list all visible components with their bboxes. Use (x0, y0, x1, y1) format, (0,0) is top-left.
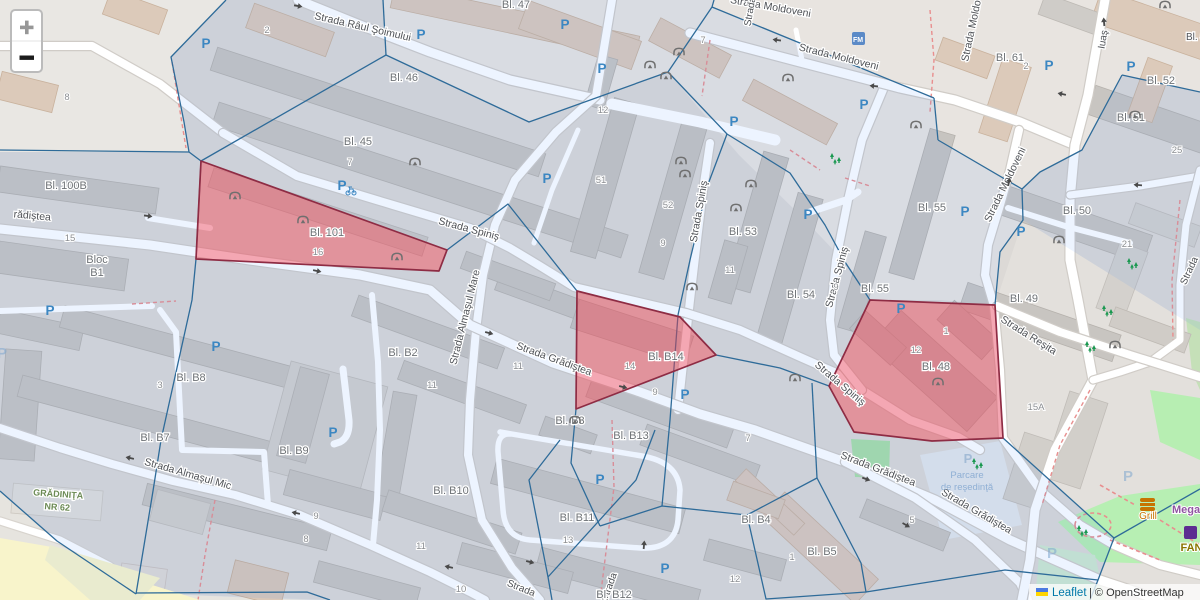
svg-text:B1: B1 (90, 267, 103, 279)
svg-text:P: P (0, 345, 7, 362)
svg-text:P: P (328, 425, 337, 440)
svg-text:Bl. 100B: Bl. 100B (45, 180, 87, 192)
svg-text:P: P (1047, 545, 1057, 562)
svg-text:Bl. B8: Bl. B8 (176, 372, 205, 384)
svg-text:Bl. 47: Bl. 47 (502, 0, 530, 11)
svg-text:P: P (597, 61, 606, 76)
svg-text:P: P (45, 303, 54, 318)
svg-text:Bl. 55: Bl. 55 (861, 283, 889, 295)
svg-text:7: 7 (347, 157, 352, 168)
svg-text:10: 10 (456, 584, 467, 595)
svg-text:Bl. B12: Bl. B12 (596, 589, 631, 600)
svg-text:1: 1 (789, 552, 794, 563)
svg-text:Parcare: Parcare (950, 470, 983, 481)
svg-text:P: P (542, 171, 551, 186)
svg-text:Bl. B9: Bl. B9 (279, 445, 308, 457)
svg-text:Bloc: Bloc (86, 254, 108, 266)
svg-text:P: P (680, 387, 689, 402)
svg-text:5: 5 (909, 515, 914, 526)
svg-text:14: 14 (625, 361, 636, 372)
svg-text:52: 52 (663, 200, 674, 211)
svg-text:3: 3 (157, 380, 162, 391)
svg-text:13: 13 (563, 535, 574, 546)
svg-text:Bl. 54: Bl. 54 (787, 289, 815, 301)
svg-text:Bl. 52: Bl. 52 (1147, 75, 1175, 87)
svg-text:8: 8 (303, 534, 308, 545)
svg-text:Bl. B11: Bl. B11 (560, 512, 595, 524)
svg-text:| © OpenStreetMap: | © OpenStreetMap (1089, 587, 1184, 599)
svg-text:Bl. 5: Bl. 5 (1186, 32, 1200, 43)
svg-text:1: 1 (943, 326, 948, 337)
svg-text:P: P (201, 36, 210, 51)
svg-text:P: P (416, 27, 425, 42)
svg-text:8: 8 (64, 92, 69, 103)
svg-text:15A: 15A (1028, 402, 1046, 413)
svg-text:9: 9 (652, 387, 657, 398)
svg-text:9: 9 (833, 282, 838, 293)
svg-text:Bl. B7: Bl. B7 (140, 432, 169, 444)
svg-text:P: P (595, 472, 604, 487)
svg-text:Bl. 46: Bl. 46 (390, 72, 418, 84)
svg-text:12: 12 (730, 574, 741, 585)
svg-text:P: P (859, 97, 868, 112)
svg-text:P: P (803, 207, 812, 222)
svg-text:FANI: FANI (1180, 542, 1200, 554)
svg-text:16: 16 (313, 247, 324, 258)
svg-text:Bl. B10: Bl. B10 (433, 485, 468, 497)
svg-text:Mega: Mega (1172, 504, 1200, 516)
svg-text:12: 12 (911, 345, 922, 356)
svg-text:P: P (960, 204, 969, 219)
svg-text:P: P (896, 301, 905, 316)
svg-text:Bl. B4: Bl. B4 (741, 514, 770, 526)
svg-text:Bl. B14: Bl. B14 (648, 351, 683, 363)
svg-text:25: 25 (1172, 145, 1183, 156)
svg-text:P: P (1044, 58, 1053, 73)
svg-text:FM: FM (853, 37, 863, 44)
svg-text:21: 21 (1122, 239, 1133, 250)
svg-text:P: P (337, 178, 346, 193)
svg-text:Bl. 50: Bl. 50 (1063, 205, 1091, 217)
svg-text:Bl. 55: Bl. 55 (918, 202, 946, 214)
svg-text:11: 11 (427, 380, 437, 391)
svg-text:Bl. 45: Bl. 45 (344, 136, 372, 148)
svg-text:P: P (729, 114, 738, 129)
svg-text:Bl. 48: Bl. 48 (922, 361, 950, 373)
svg-text:Bl. B13: Bl. B13 (613, 430, 648, 442)
svg-text:Leaflet: Leaflet (1052, 587, 1087, 599)
svg-text:15: 15 (65, 233, 76, 244)
svg-text:9: 9 (313, 511, 318, 522)
svg-text:P: P (211, 339, 220, 354)
svg-text:Bl. B5: Bl. B5 (807, 546, 836, 558)
svg-text:P: P (964, 451, 973, 466)
svg-text:11: 11 (416, 541, 426, 552)
svg-text:7: 7 (700, 35, 705, 46)
svg-text:7: 7 (745, 433, 750, 444)
svg-text:9: 9 (660, 238, 665, 249)
svg-text:P: P (1126, 59, 1135, 74)
svg-text:P: P (1123, 468, 1133, 485)
svg-text:12: 12 (598, 105, 609, 116)
svg-text:Grill: Grill (1139, 511, 1157, 522)
svg-text:51: 51 (596, 175, 607, 186)
svg-text:Bl. 49: Bl. 49 (1010, 293, 1038, 305)
svg-text:Bl. 61: Bl. 61 (996, 52, 1024, 64)
svg-text:11: 11 (725, 265, 735, 276)
svg-text:P: P (1016, 224, 1025, 239)
svg-text:11: 11 (513, 361, 523, 372)
svg-text:2: 2 (1023, 61, 1028, 72)
svg-text:Bl. 53: Bl. 53 (729, 226, 757, 238)
svg-text:2: 2 (264, 25, 269, 36)
svg-text:P: P (560, 17, 569, 32)
svg-text:de reşedinţă: de reşedinţă (941, 482, 994, 493)
svg-text:NR 62: NR 62 (44, 501, 70, 513)
svg-text:Bl. B2: Bl. B2 (388, 347, 417, 359)
svg-text:P: P (660, 561, 669, 576)
svg-text:Bl. 101: Bl. 101 (310, 227, 344, 239)
